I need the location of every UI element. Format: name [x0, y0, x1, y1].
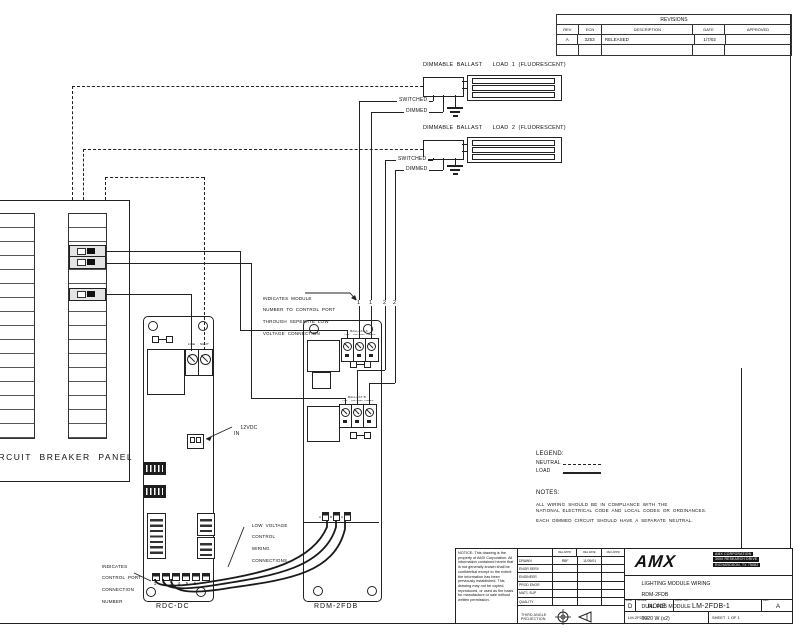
footer-strip: LM-2FDB-1 SHEET 1 OF 1	[625, 612, 793, 623]
load1-ballast-box	[423, 77, 464, 97]
rev-value: A	[776, 604, 780, 611]
line-wire	[104, 251, 240, 252]
screw-terminal-icon	[355, 342, 364, 351]
screw-terminal-icon	[365, 408, 374, 417]
rdm-section-b-box	[307, 406, 340, 442]
ground-icon	[447, 107, 463, 109]
low-voltage-annotation: LOW VOLTAGE CONTROL WIRING CONNECTIONS	[246, 517, 288, 569]
dc-in-connector	[187, 434, 204, 449]
load1-switched-label: SWITCHED	[397, 98, 429, 104]
sig-row-engr-serv: ENGR SERV	[518, 565, 624, 573]
revisions-col-approved: APPROVED	[725, 25, 791, 34]
revisions-col-ecn: ECN	[579, 25, 603, 34]
lamp	[472, 85, 555, 91]
sig-row-drawn: DRAWN RBF 11/05/01	[518, 557, 624, 565]
legend-title: LEGEND:	[536, 451, 564, 458]
legend-neutral-label: NEUTRAL	[536, 461, 561, 467]
revisions-title: REVISIONS	[660, 17, 687, 23]
mounting-hole	[367, 586, 377, 596]
screw-terminal-icon	[200, 354, 211, 365]
sig-row-quality: QUALITY	[518, 598, 624, 606]
module-number-2b: 2	[392, 300, 397, 306]
line-wire	[104, 263, 251, 264]
module-number-1: 1	[356, 300, 361, 306]
logo-row: AMX AMX CORPORATION 3000 RESEARCH DRIVE …	[625, 549, 793, 576]
rev-label: REV	[763, 600, 769, 603]
fuse-icon	[350, 432, 371, 439]
note-line-1: ALL WIRING SHOULD BE IN COMPLIANCE WITH …	[536, 502, 668, 507]
amx-logo: AMX	[634, 552, 677, 572]
note-line-2: NATIONAL ELECTRICAL CODE AND LOCAL CODES…	[536, 508, 706, 513]
dimmed-wire	[395, 170, 396, 383]
mounting-hole	[196, 587, 206, 597]
mounting-hole	[148, 321, 158, 331]
ground-icon	[447, 165, 463, 167]
title-block: NOTICE: This drawing is the property of …	[455, 548, 793, 624]
rdc-module-label: RDC-DC	[156, 603, 190, 611]
sig-row-prod-engr: PROD ENGR	[518, 582, 624, 590]
lamp	[472, 147, 555, 153]
switched-wire	[385, 160, 386, 370]
neutral-wire	[105, 177, 204, 178]
module-number-1b: 1	[368, 300, 373, 306]
rdm-abc-connector: A B C	[319, 512, 351, 521]
rdm-module-label: RDM-2FDB	[314, 603, 358, 611]
control-port-numbers: 1 2 3 4 5 6	[152, 581, 198, 586]
load1-title: DIMMABLE BALLAST LOAD 1 (FLUORESCENT)	[423, 62, 566, 68]
size-label: SIZE	[626, 600, 633, 603]
dimmed-wire	[369, 383, 370, 404]
load2-ballast-box	[423, 140, 464, 160]
scale-value: NONE	[648, 604, 666, 611]
legend-load-sample	[563, 472, 601, 474]
mounting-hole	[198, 321, 208, 331]
rdc-transformer-box	[147, 349, 185, 395]
legend-load-label: LOAD	[536, 469, 550, 475]
note-line-3: EACH DIMMED CIRCUIT SHOULD HAVE A SEPARA…	[536, 518, 693, 523]
mounting-hole	[146, 587, 156, 597]
revisions-empty-row	[557, 45, 791, 55]
company-address: AMX CORPORATION 3000 RESEARCH DRIVE RICH…	[713, 552, 760, 568]
breaker-column-left	[0, 213, 35, 439]
lamp	[472, 78, 555, 84]
revisions-col-description: DESCRIPTION	[602, 25, 693, 34]
screw-terminal-icon	[341, 408, 350, 417]
terminal-block-4	[197, 513, 215, 536]
lamp	[472, 154, 555, 160]
switched-wire	[357, 370, 385, 371]
line-wire	[104, 294, 191, 295]
ground-stem	[455, 158, 456, 165]
dimmed-wire	[443, 95, 444, 112]
line-wire	[251, 263, 252, 398]
load2-switched-label: SWITCHED	[396, 157, 428, 163]
load2-dimmed-label: DIMMED	[404, 167, 429, 173]
line-wire	[347, 330, 348, 339]
load1-dimmed-label: DIMMED	[404, 109, 429, 115]
line-wire	[191, 294, 192, 351]
sheet-right-border	[790, 14, 791, 623]
ground-stem	[455, 95, 456, 107]
size-value: D	[628, 604, 633, 611]
breaker-switch-3	[69, 288, 106, 301]
revision-description: RELEASED	[602, 35, 695, 44]
revision-ecn: 3253	[578, 35, 601, 44]
notes-title: NOTES:	[536, 490, 560, 497]
dimmed-wire	[443, 158, 444, 170]
revisions-col-rev: REV	[557, 25, 579, 34]
breaker-switch-2	[69, 256, 106, 269]
sig-row-matl-sup: MAT'L SUP	[518, 590, 624, 598]
load2-fixture	[467, 137, 562, 163]
sig-row-engineer: ENGINEER	[518, 573, 624, 581]
load2-title: DIMMABLE BALLAST LOAD 2 (FLUORESCENT)	[423, 125, 566, 131]
legend-neutral-sample	[563, 464, 601, 465]
signature-table: REL APPR REL DATE REV APPR DRAWN RBF 11/…	[518, 549, 624, 623]
dwg-no-value: LM-2FDB-1	[692, 603, 730, 611]
terminal-block-4	[197, 537, 215, 559]
dc-in-label: 12VDCIN	[234, 420, 257, 443]
load1-fixture	[467, 75, 562, 101]
lamp	[472, 92, 555, 98]
rdm-section-a-box	[307, 340, 340, 372]
dwg-no-label: DWG. NO.	[675, 600, 689, 603]
revision-rev: A	[557, 35, 578, 44]
dip-switch	[143, 485, 166, 498]
switched-wire	[433, 158, 434, 160]
screw-terminal-icon	[367, 342, 376, 351]
title-block-right: AMX AMX CORPORATION 3000 RESEARCH DRIVE …	[624, 549, 793, 623]
size-scale-row: SIZE D SCALE NONE DWG. NO. LM-2FDB-1 REV…	[625, 599, 793, 612]
line-wire	[345, 398, 346, 405]
mounting-hole	[313, 586, 323, 596]
screw-terminal-icon	[187, 354, 198, 365]
neutral-wire	[83, 149, 84, 200]
notice-text: NOTICE: This drawing is the property of …	[456, 549, 518, 623]
terminal-block-8	[147, 513, 166, 559]
neutral-wire	[105, 177, 106, 200]
rdm-section-a-subbox	[312, 372, 331, 389]
control-port-annotation: INDICATES CONTROL PORT CONNECTION NUMBER	[96, 558, 141, 610]
wiring-diagram-sheet: REVISIONS REV ECN DESCRIPTION DATE APPRO…	[0, 0, 808, 638]
revision-date: 1/7/02	[695, 35, 726, 44]
control-port-connector	[152, 573, 210, 581]
projection-row: THIRD ANGLE PROJECTION	[518, 606, 624, 628]
revisions-col-date: DATE	[693, 25, 725, 34]
sig-header-3: REV APPR	[602, 549, 624, 556]
fuse-icon	[152, 336, 173, 343]
screw-terminal-icon	[353, 408, 362, 417]
dimmed-wire	[369, 383, 395, 384]
line-wire	[251, 398, 345, 399]
screw-terminal-icon	[343, 342, 352, 351]
fuse-icon	[350, 361, 371, 368]
third-angle-projection-icon	[551, 607, 597, 627]
lamp	[472, 140, 555, 146]
panel-label: CIRCUIT BREAKER PANEL	[0, 453, 133, 463]
module-number-2: 2	[382, 300, 387, 306]
switched-wire	[433, 95, 434, 101]
module-number-annotation: INDICATES MODULE NUMBER TO CONTROL PORT …	[257, 290, 335, 342]
sig-header-2: REL DATE	[577, 549, 602, 556]
revisions-row: A 3253 RELEASED 1/7/02	[557, 35, 791, 45]
revisions-table: REVISIONS REV ECN DESCRIPTION DATE APPRO…	[556, 14, 792, 56]
sheet-number: SHEET 1 OF 1	[709, 612, 793, 623]
switched-wire	[357, 370, 358, 404]
scale-label: SCALE	[637, 600, 647, 603]
dip-switch	[143, 462, 166, 475]
neutral-wire	[72, 86, 423, 87]
projection-label: THIRD ANGLE PROJECTION	[521, 613, 551, 621]
revision-approved	[726, 35, 791, 44]
neutral-wire	[83, 149, 423, 150]
sig-header-1: REL APPR	[553, 549, 578, 556]
neutral-wire	[72, 86, 73, 200]
footer-dwg-no: LM-2FDB-1	[625, 612, 709, 623]
inner-border-line	[741, 368, 742, 548]
